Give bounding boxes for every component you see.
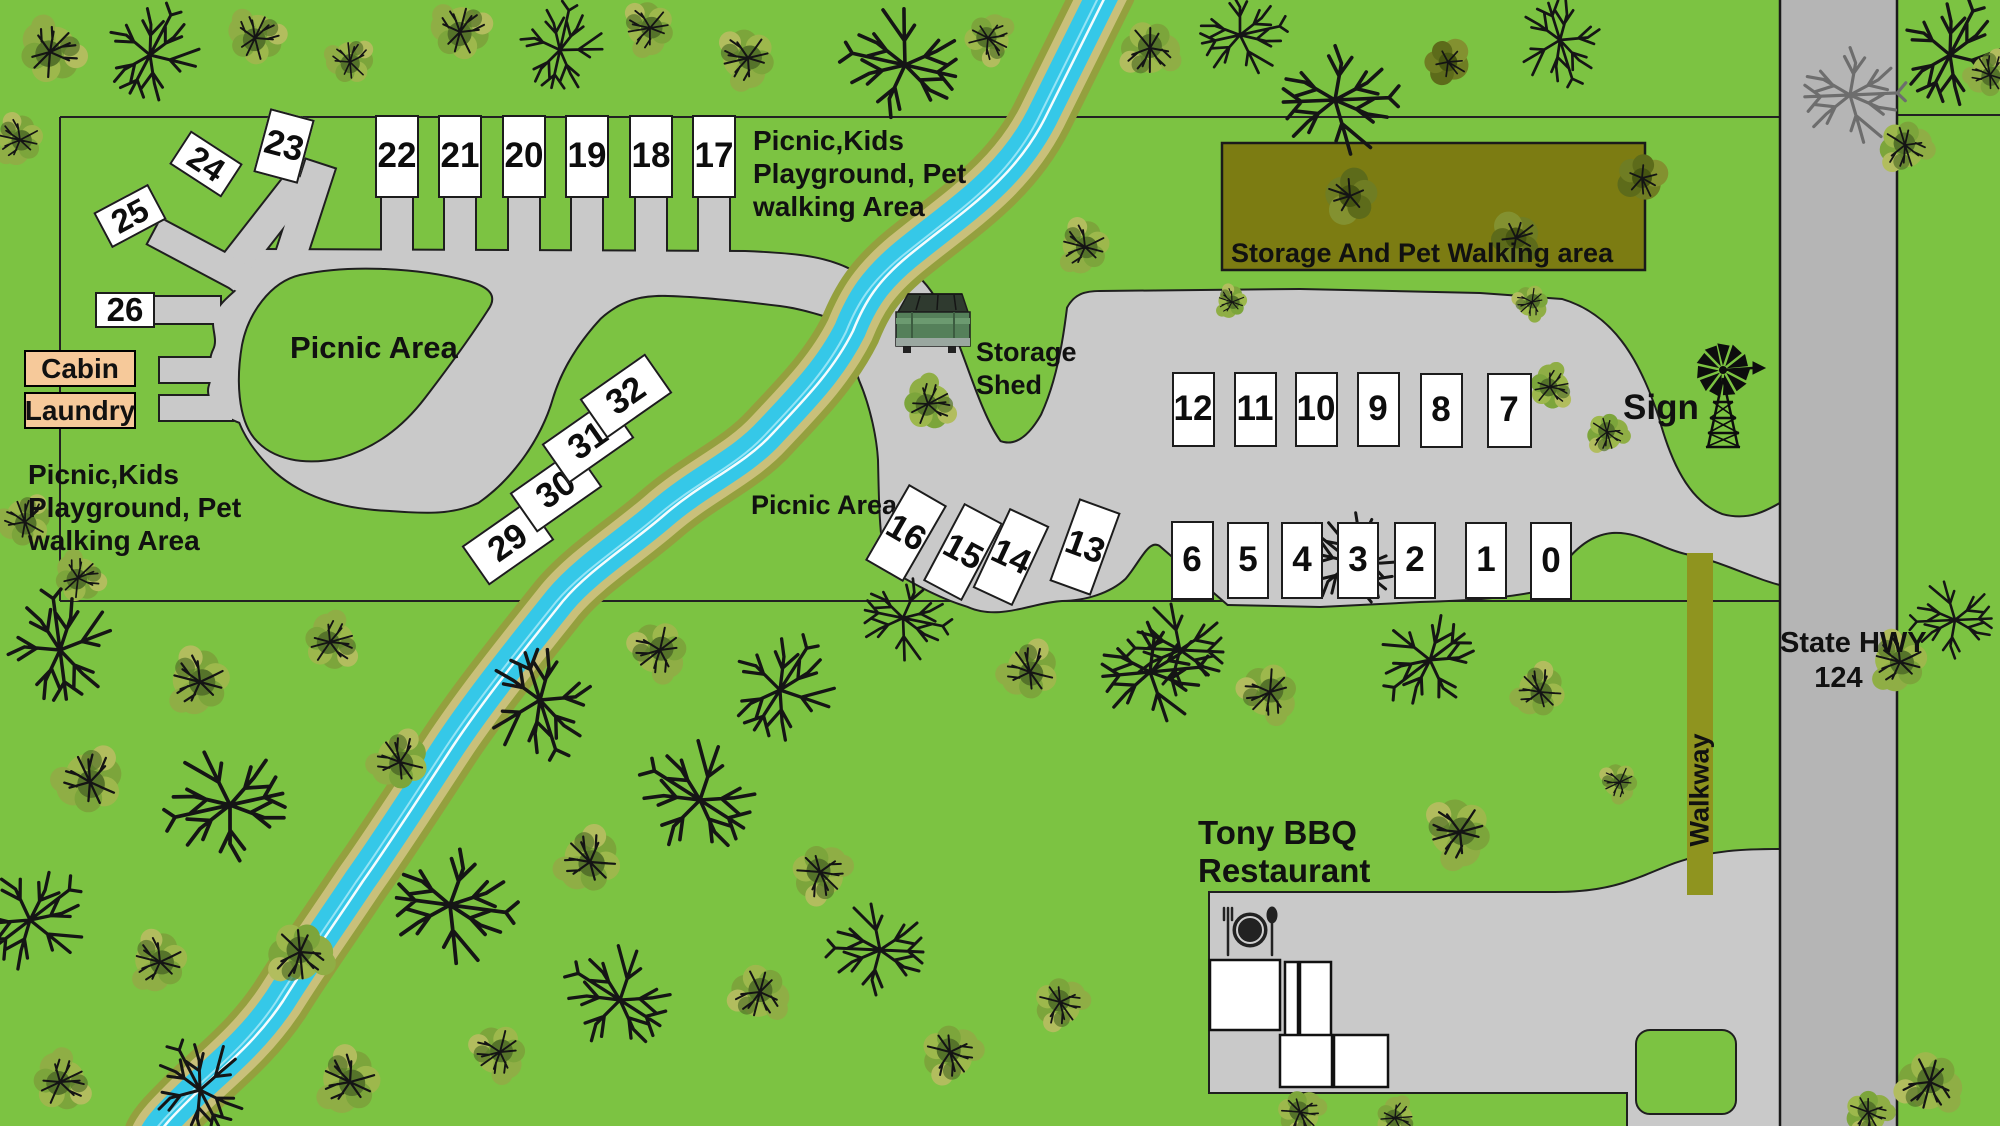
site-marker-10[interactable]: 10 [1295,372,1338,447]
site-marker-17[interactable]: 17 [692,115,736,198]
dumpster-icon [896,294,970,353]
cabin-box[interactable]: Cabin [24,350,136,387]
site-marker-11[interactable]: 11 [1234,372,1277,447]
site-marker-1[interactable]: 1 [1465,522,1507,599]
state-highway-road [1780,0,1897,1126]
restaurant-lot-green-notch [1636,1030,1736,1114]
site-marker-22[interactable]: 22 [375,115,419,198]
site-marker-2[interactable]: 2 [1394,522,1436,599]
site-marker-5[interactable]: 5 [1227,522,1269,599]
site-marker-6[interactable]: 6 [1171,521,1214,600]
site-marker-20[interactable]: 20 [502,115,546,198]
laundry-box[interactable]: Laundry [24,392,136,429]
site-marker-3[interactable]: 3 [1337,522,1379,599]
site-marker-7[interactable]: 7 [1487,373,1532,448]
site-marker-0[interactable]: 0 [1530,522,1572,600]
site-marker-8[interactable]: 8 [1420,373,1463,448]
site-marker-26[interactable]: 26 [95,292,155,328]
storage-pet-walking-area [1222,143,1645,270]
site-marker-18[interactable]: 18 [629,115,673,198]
walkway-path [1687,553,1713,895]
site-marker-21[interactable]: 21 [438,115,482,198]
site-marker-19[interactable]: 19 [565,115,609,198]
campground-map: Picnic,KidsPlayground, Petwalking Area P… [0,0,2000,1126]
site-marker-4[interactable]: 4 [1281,522,1323,599]
site-marker-12[interactable]: 12 [1172,372,1215,447]
site-marker-9[interactable]: 9 [1357,372,1400,447]
